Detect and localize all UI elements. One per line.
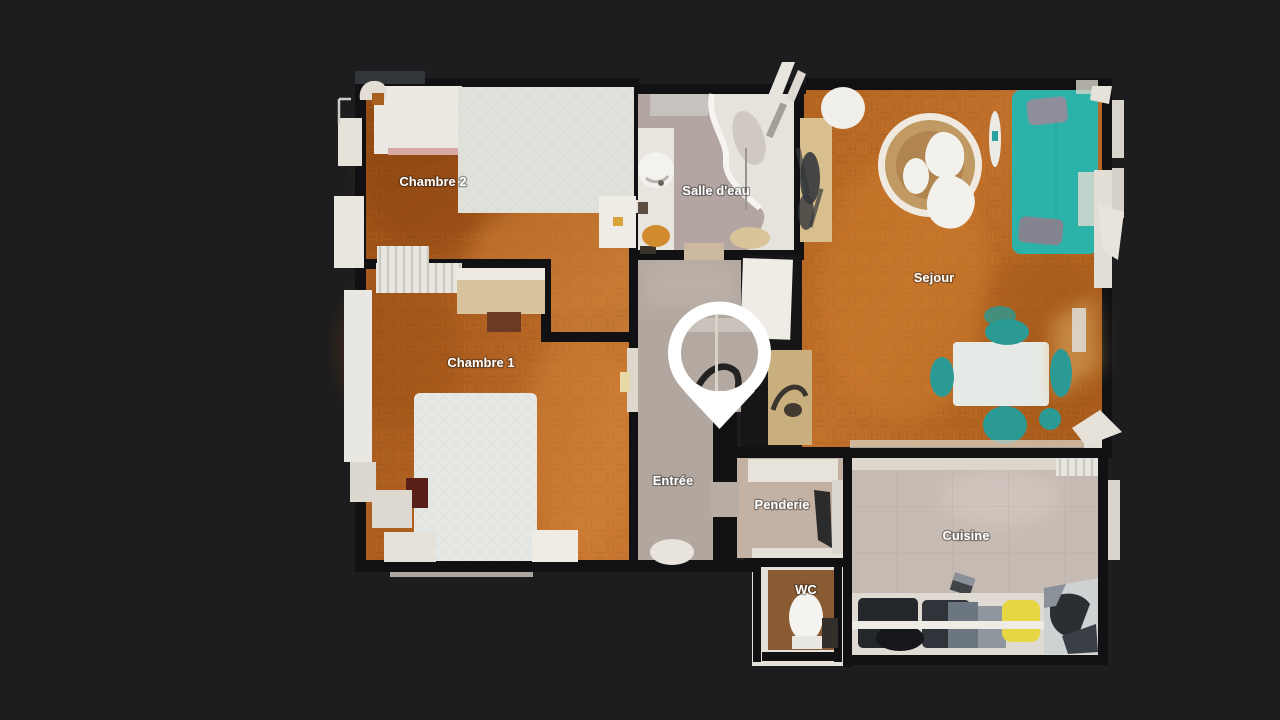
svg-text:Penderie: Penderie bbox=[755, 497, 810, 512]
svg-text:Cuisine: Cuisine bbox=[943, 528, 990, 543]
svg-text:Sejour: Sejour bbox=[914, 270, 954, 285]
svg-text:Salle d'eau: Salle d'eau bbox=[682, 183, 749, 198]
svg-text:Chambre 1: Chambre 1 bbox=[447, 355, 514, 370]
svg-text:WC: WC bbox=[795, 582, 817, 597]
svg-text:Entrée: Entrée bbox=[653, 473, 693, 488]
svg-text:Chambre 2: Chambre 2 bbox=[399, 174, 466, 189]
